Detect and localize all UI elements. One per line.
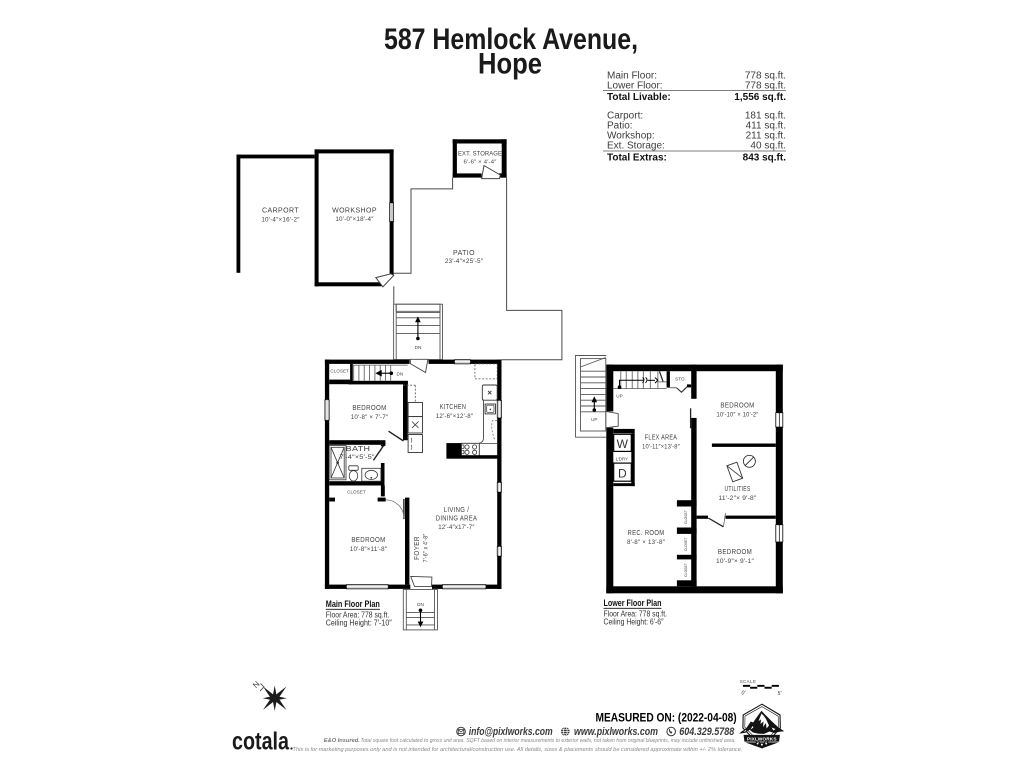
svg-text:Hope: Hope <box>478 48 542 81</box>
svg-text:WORKSHOP: WORKSHOP <box>332 208 377 215</box>
svg-text:CLOSET: CLOSET <box>683 563 688 577</box>
svg-text:Lower Floor:: Lower Floor: <box>607 81 663 92</box>
svg-text:EXT. STORAGE: EXT. STORAGE <box>458 151 502 158</box>
svg-text:UP: UP <box>591 417 597 422</box>
svg-text:BATH: BATH <box>346 446 371 453</box>
svg-text:DN: DN <box>415 345 422 350</box>
svg-text:UTILITIES: UTILITIES <box>725 484 751 493</box>
svg-text:Ceiling Height: 6′-6″: Ceiling Height: 6′-6″ <box>604 618 664 627</box>
svg-text:40 sq.ft.: 40 sq.ft. <box>750 140 786 151</box>
svg-text:Lower Floor Plan: Lower Floor Plan <box>604 597 662 608</box>
svg-text:8′-8″ × 13′-8″: 8′-8″ × 13′-8″ <box>627 539 666 546</box>
svg-text:1,556 sq.ft.: 1,556 sq.ft. <box>734 92 786 103</box>
svg-text:10′-4″×16′-2″: 10′-4″×16′-2″ <box>261 216 300 223</box>
svg-text:7′-4″×5′-5″: 7′-4″×5′-5″ <box>339 454 375 461</box>
svg-text:10′-0″×18′-4″: 10′-0″×18′-4″ <box>335 216 374 223</box>
svg-text:BEDROOM: BEDROOM <box>352 403 386 412</box>
svg-text:604.329.5788: 604.329.5788 <box>679 726 735 738</box>
svg-text:DINING AREA: DINING AREA <box>436 514 478 523</box>
svg-text:778 sq.ft.: 778 sq.ft. <box>745 81 786 92</box>
svg-text:Total Livable:: Total Livable: <box>607 92 671 103</box>
svg-text:Main Floor Plan: Main Floor Plan <box>326 598 380 609</box>
svg-text:PIXLWORKS: PIXLWORKS <box>747 736 777 742</box>
svg-text:6′-6″ × 4′-4″: 6′-6″ × 4′-4″ <box>464 160 497 166</box>
svg-text:STO.: STO. <box>675 377 686 382</box>
svg-text:10′-10″ × 10′-2″: 10′-10″ × 10′-2″ <box>717 412 760 419</box>
svg-text:12′-6″×12′-8″: 12′-6″×12′-8″ <box>436 413 474 420</box>
svg-text:L′DRY: L′DRY <box>616 457 629 462</box>
svg-text:cotala: cotala <box>232 728 290 756</box>
svg-text:BEDROOM: BEDROOM <box>720 401 754 410</box>
svg-text:7′-6″ x 4′-8″: 7′-6″ x 4′-8″ <box>423 533 430 562</box>
svg-text:D: D <box>618 466 627 480</box>
svg-text:info@pixlworks.com: info@pixlworks.com <box>469 726 553 738</box>
svg-text:12′-4″x17′-7″: 12′-4″x17′-7″ <box>438 524 475 531</box>
svg-text:Ext. Storage:: Ext. Storage: <box>607 140 665 151</box>
svg-text:KITCHEN: KITCHEN <box>440 402 467 411</box>
svg-text:CLOSET: CLOSET <box>683 510 688 524</box>
svg-text:FOYER: FOYER <box>412 536 421 560</box>
svg-text:www.pixlworks.com: www.pixlworks.com <box>574 726 658 738</box>
svg-text:This is for marketing purposes: This is for marketing purposes only and … <box>293 747 743 753</box>
svg-text:MEASURED ON: (2022-04-08): MEASURED ON: (2022-04-08) <box>596 711 737 725</box>
svg-text:Total Extras:: Total Extras: <box>607 152 667 163</box>
svg-text:BEDROOM: BEDROOM <box>351 535 385 544</box>
svg-text:11′-2″× 9′-8″: 11′-2″× 9′-8″ <box>719 495 758 502</box>
svg-text:DN: DN <box>417 602 424 607</box>
svg-text:DN: DN <box>397 371 404 376</box>
svg-text:CLOSET: CLOSET <box>683 537 688 551</box>
svg-text:10′-8″ × 7′-7″: 10′-8″ × 7′-7″ <box>351 414 389 421</box>
svg-text:E&O Insured.: E&O Insured. <box>324 738 360 744</box>
svg-text:10′-9″× 9′-1″: 10′-9″× 9′-1″ <box>716 558 755 565</box>
svg-text:SCALE: SCALE <box>740 679 757 684</box>
svg-text:CLOSET: CLOSET <box>347 489 366 494</box>
svg-text:PATIO: PATIO <box>453 250 475 257</box>
svg-text:CLOSET: CLOSET <box>330 369 349 374</box>
svg-text:BEDROOM: BEDROOM <box>718 547 752 556</box>
svg-text:REC. ROOM: REC. ROOM <box>628 528 665 537</box>
svg-text:W: W <box>617 437 629 451</box>
svg-text:10′-11″×13′-8″: 10′-11″×13′-8″ <box>642 444 680 451</box>
svg-text:10′-8″×11′-8″: 10′-8″×11′-8″ <box>350 546 388 553</box>
svg-text:FLEX AREA: FLEX AREA <box>645 433 678 442</box>
svg-text:CARPORT: CARPORT <box>262 208 299 215</box>
svg-text:843 sq.ft.: 843 sq.ft. <box>743 152 787 163</box>
svg-text:23′-4″×25′-5″: 23′-4″×25′-5″ <box>445 258 484 265</box>
svg-text:UP: UP <box>616 394 622 399</box>
svg-text:Ceiling Height: 7′-10″: Ceiling Height: 7′-10″ <box>326 619 392 628</box>
svg-text:Total square foot calculated t: Total square foot calculated to gross un… <box>361 738 736 744</box>
